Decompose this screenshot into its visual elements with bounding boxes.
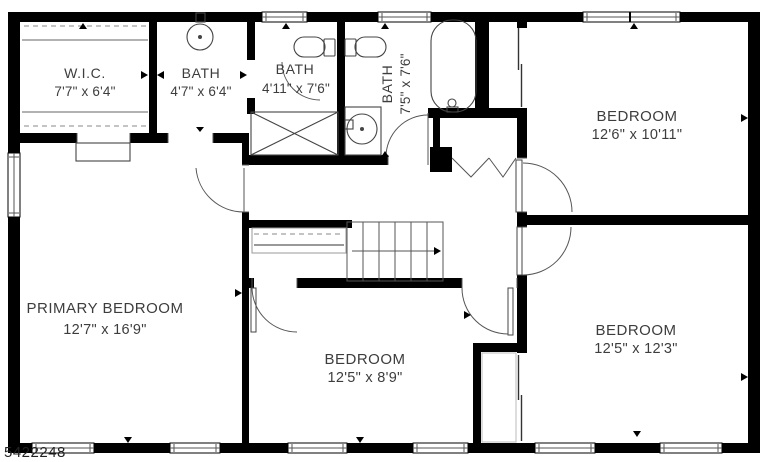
- window-symbol: [170, 443, 220, 453]
- door-swing: [462, 288, 513, 335]
- room-label-bedroom-bottom-center: BEDROOM 12'5" x 8'9": [324, 351, 405, 386]
- window-symbol: [262, 12, 307, 22]
- room-label-wic: W.I.C. 7'7" x 6'4": [54, 65, 115, 99]
- room-label-primary-bedroom: PRIMARY BEDROOM 12'7" x 16'9": [27, 300, 184, 338]
- door-swing: [516, 160, 572, 212]
- room-dims: 12'6" x 10'11": [592, 127, 683, 143]
- room-dims: 4'11" x 7'6": [262, 81, 330, 96]
- window-symbol: [583, 12, 680, 22]
- door-swing: [251, 288, 297, 332]
- window-symbol: [535, 443, 595, 453]
- toilet-symbol: [345, 37, 386, 57]
- floor-plan-drawing: W.I.C. 7'7" x 6'4" BATH 4'7" x 6'4" BATH…: [0, 0, 768, 462]
- room-dims: 4'7" x 6'4": [170, 84, 231, 99]
- room-dims: 12'5" x 8'9": [327, 370, 402, 386]
- window-symbol: [378, 12, 431, 22]
- room-dims: 7'7" x 6'4": [54, 84, 115, 99]
- window-symbol: [413, 443, 468, 453]
- door-swing: [386, 113, 428, 157]
- room-label-bedroom-bottom-right: BEDROOM 12'5" x 12'3": [594, 322, 677, 357]
- room-dims: 7'5" x 7'6": [398, 53, 413, 114]
- toilet-symbol: [294, 37, 335, 57]
- room-name: PRIMARY BEDROOM: [27, 300, 184, 317]
- room-name: W.I.C.: [64, 65, 106, 81]
- staircase-symbol: [347, 222, 443, 281]
- sink-symbol: [345, 107, 381, 155]
- wall-recess-box: [76, 143, 130, 161]
- shower-symbol: [251, 112, 338, 155]
- room-name: BEDROOM: [324, 351, 405, 368]
- room-name: BEDROOM: [596, 108, 677, 125]
- room-name: BATH: [276, 61, 315, 77]
- room-label-bedroom-top-right: BEDROOM 12'6" x 10'11": [592, 108, 683, 143]
- floor-plan: W.I.C. 7'7" x 6'4" BATH 4'7" x 6'4" BATH…: [0, 0, 768, 462]
- sliding-door-symbol: [482, 353, 522, 442]
- room-name: BEDROOM: [595, 322, 676, 339]
- bifold-door-symbol: [452, 158, 516, 177]
- room-dims: 12'5" x 12'3": [594, 341, 677, 357]
- room-name: BATH: [182, 65, 221, 81]
- bathtub-symbol: [431, 20, 476, 112]
- window-symbol: [660, 443, 722, 453]
- room-label-bath-hall: BATH 4'11" x 7'6": [262, 61, 330, 96]
- room-label-bath-ensuite: BATH 4'7" x 6'4": [170, 65, 231, 99]
- listing-id-watermark: 5422248: [4, 444, 66, 461]
- room-name: BATH: [379, 65, 395, 104]
- windows: [8, 12, 722, 453]
- window-symbol: [8, 153, 20, 217]
- room-label-bath-right: BATH 7'5" x 7'6": [379, 53, 413, 114]
- room-dims: 12'7" x 16'9": [63, 322, 146, 338]
- closet-shelf-symbol: [252, 228, 346, 253]
- door-swing: [517, 227, 571, 275]
- door-swing: [196, 168, 244, 212]
- sliding-door-symbol: [519, 28, 522, 107]
- window-symbol: [288, 443, 347, 453]
